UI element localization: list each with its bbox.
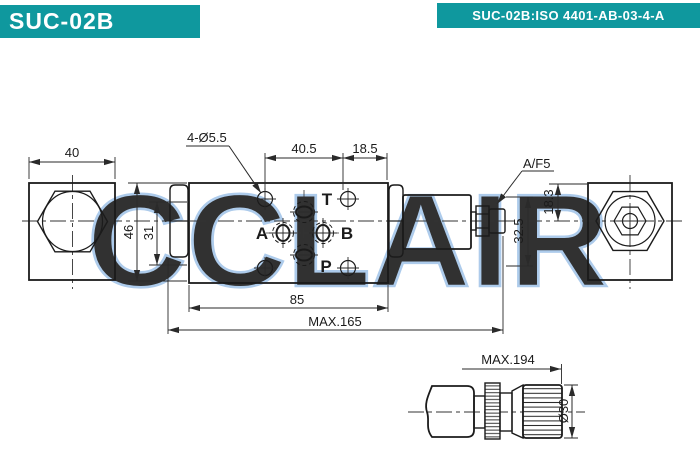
svg-text:40.5: 40.5 <box>291 141 316 156</box>
spec-text: SUC-02B:ISO 4401-AB-03-4-A <box>472 8 664 23</box>
svg-text:18.3: 18.3 <box>541 189 556 214</box>
detail-body <box>426 386 474 437</box>
model-name: SUC-02B <box>9 8 114 34</box>
svg-text:40: 40 <box>65 145 79 160</box>
spec-banner: SUC-02B:ISO 4401-AB-03-4-A <box>437 3 700 28</box>
svg-text:46: 46 <box>121 225 136 239</box>
technical-drawing: CCLAIR <box>0 0 700 476</box>
svg-text:32.5: 32.5 <box>511 218 526 243</box>
svg-text:31: 31 <box>141 226 156 240</box>
svg-text:85: 85 <box>290 292 304 307</box>
dim-overall-length-knob: MAX.194 <box>462 352 562 384</box>
svg-text:A/F5: A/F5 <box>523 156 550 171</box>
port-label-B: B <box>341 224 353 243</box>
knob-detail-view: MAX.194 Ø30 <box>426 352 578 439</box>
svg-text:MAX.194: MAX.194 <box>481 352 534 367</box>
model-banner: SUC-02B <box>0 5 200 38</box>
svg-text:Ø30: Ø30 <box>556 399 571 424</box>
port-label-A: A <box>256 224 268 243</box>
knob-taper <box>512 385 523 438</box>
svg-text:4-Ø5.5: 4-Ø5.5 <box>187 130 227 145</box>
catalog-page: SUC-02B SUC-02B:ISO 4401-AB-03-4-A CCLAI… <box>0 0 700 476</box>
port-label-T: T <box>322 190 333 209</box>
svg-text:18.5: 18.5 <box>352 141 377 156</box>
svg-text:MAX.165: MAX.165 <box>308 314 361 329</box>
port-label-P: P <box>320 257 331 276</box>
knurled-ring <box>485 383 500 439</box>
